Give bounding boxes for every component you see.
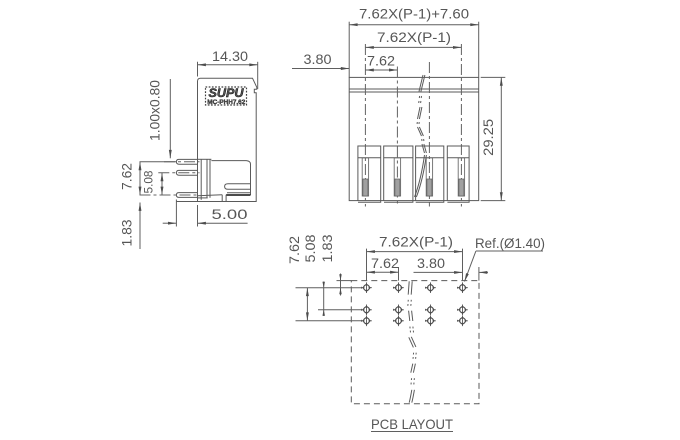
svg-text:29.25: 29.25 — [481, 119, 496, 156]
svg-text:1.00x0.80: 1.00x0.80 — [148, 80, 163, 141]
svg-text:1.83: 1.83 — [320, 235, 335, 263]
svg-text:7.62: 7.62 — [371, 256, 399, 271]
svg-text:14.30: 14.30 — [212, 49, 248, 64]
svg-text:1.83: 1.83 — [120, 220, 135, 247]
svg-text:5.08: 5.08 — [303, 235, 318, 263]
svg-text:7.62X(P-1): 7.62X(P-1) — [379, 235, 453, 250]
svg-text:7.62X(P-1)+7.60: 7.62X(P-1)+7.60 — [359, 7, 469, 22]
svg-text:7.62X(P-1): 7.62X(P-1) — [377, 30, 451, 45]
svg-text:7.62: 7.62 — [120, 163, 135, 190]
svg-text:Ref.(Ø1.40): Ref.(Ø1.40) — [475, 236, 545, 251]
svg-text:MC-PHH7.62: MC-PHH7.62 — [207, 99, 245, 106]
svg-text:5.00: 5.00 — [212, 207, 248, 222]
svg-text:7.62: 7.62 — [367, 54, 395, 69]
svg-text:5.08: 5.08 — [142, 170, 156, 193]
svg-text:PCB LAYOUT: PCB LAYOUT — [371, 417, 454, 432]
svg-text:3.80: 3.80 — [417, 256, 445, 271]
svg-text:7.62: 7.62 — [287, 236, 302, 264]
svg-text:3.80: 3.80 — [304, 52, 332, 67]
